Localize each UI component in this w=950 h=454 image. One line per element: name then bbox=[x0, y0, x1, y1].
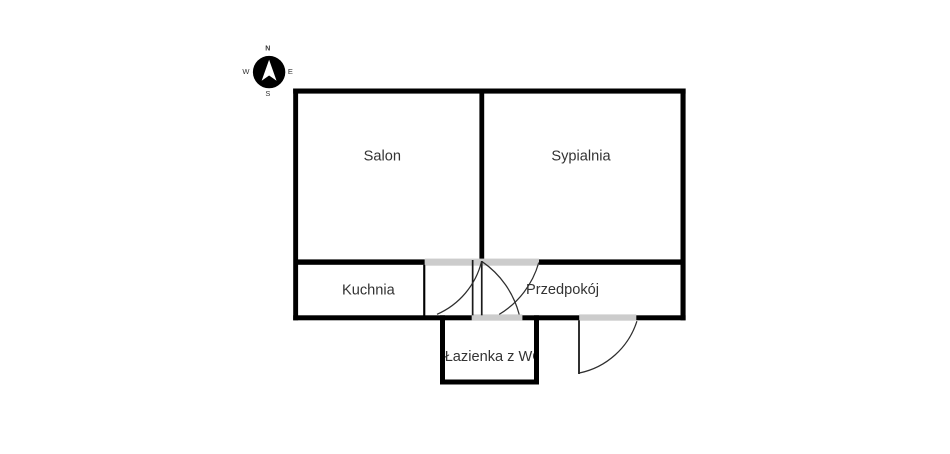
svg-text:N: N bbox=[265, 46, 270, 53]
svg-text:Kuchnia: Kuchnia bbox=[342, 283, 396, 299]
svg-text:E: E bbox=[288, 67, 293, 76]
svg-text:W: W bbox=[242, 67, 250, 76]
svg-text:Sypialnia: Sypialnia bbox=[551, 149, 611, 165]
svg-text:Przedpokój: Przedpokój bbox=[526, 282, 599, 298]
svg-text:Łazienka z WC: Łazienka z WC bbox=[445, 349, 543, 365]
svg-text:S: S bbox=[265, 89, 270, 98]
svg-text:Salon: Salon bbox=[364, 149, 401, 165]
